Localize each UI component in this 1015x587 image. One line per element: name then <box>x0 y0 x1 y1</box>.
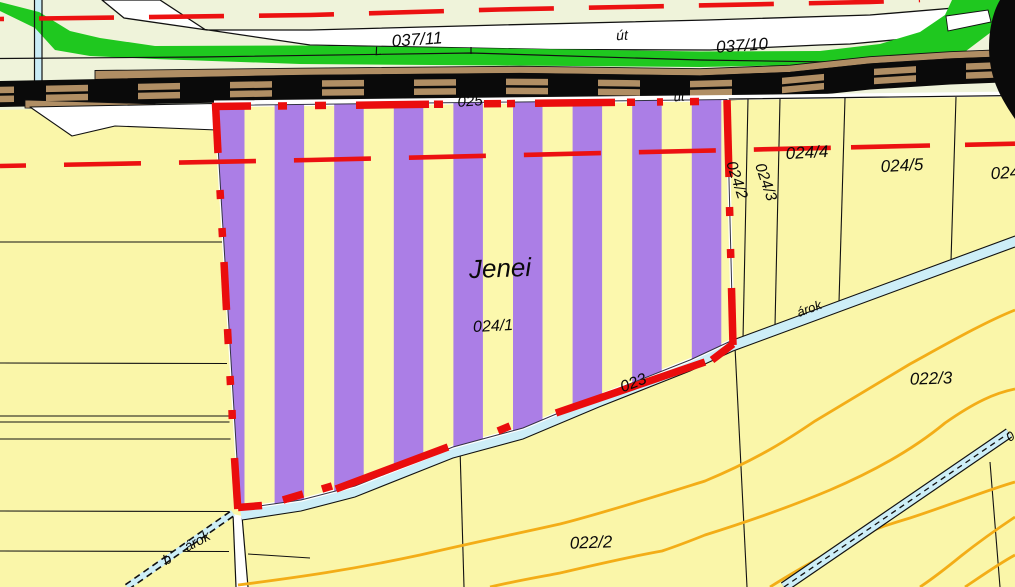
svg-text:022/2: 022/2 <box>569 532 613 552</box>
svg-text:út: út <box>616 27 630 44</box>
svg-text:024/5: 024/5 <box>880 155 924 176</box>
svg-text:022/3: 022/3 <box>909 368 953 388</box>
svg-text:Jenei: Jenei <box>467 252 532 284</box>
svg-text:037/10: 037/10 <box>715 34 769 57</box>
svg-text:025: 025 <box>457 92 484 111</box>
svg-text:024/6: 024/6 <box>990 162 1015 183</box>
svg-text:037/11: 037/11 <box>391 28 443 50</box>
svg-text:024/1: 024/1 <box>473 317 514 336</box>
svg-text:024/4: 024/4 <box>785 142 828 163</box>
